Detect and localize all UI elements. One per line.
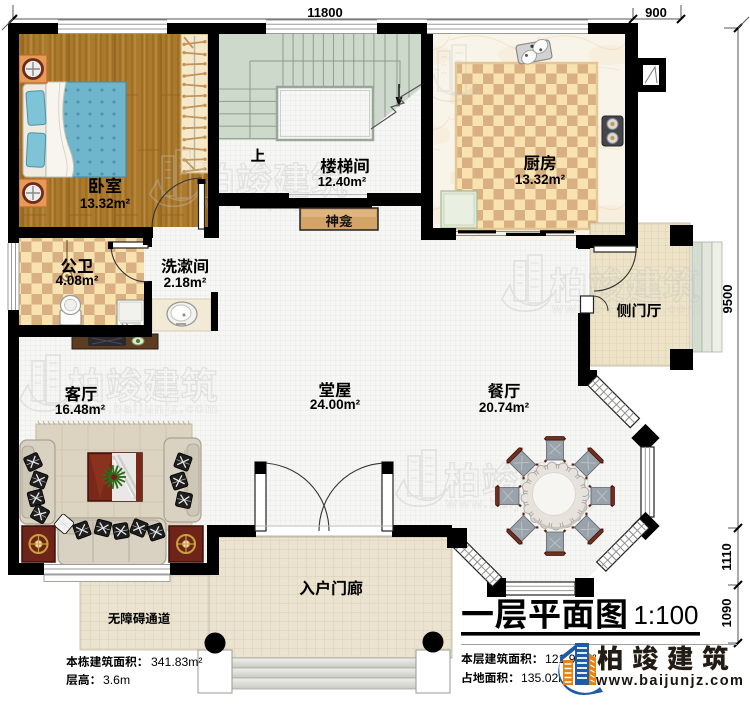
svg-text:4.08m²: 4.08m² [56,273,99,288]
svg-text:900: 900 [645,5,667,20]
svg-text:1110: 1110 [719,543,734,571]
svg-text:www.baijunjz.com: www.baijunjz.com [551,300,702,316]
svg-text:20.74m²: 20.74m² [479,400,530,415]
svg-text:13.32m²: 13.32m² [515,172,566,187]
svg-text:341.83m²: 341.83m² [151,655,203,669]
svg-text:www.baijunjz.com: www.baijunjz.com [595,673,744,689]
svg-text:1:100: 1:100 [633,600,698,630]
svg-text:11800: 11800 [307,5,342,20]
svg-text:2.18m²: 2.18m² [164,275,207,290]
svg-text:16.48m²: 16.48m² [55,402,106,417]
svg-text:13.32m²: 13.32m² [80,196,131,211]
svg-text:1090: 1090 [719,599,734,628]
svg-text:24.00m²: 24.00m² [310,397,361,412]
svg-text:3.6m: 3.6m [103,673,130,687]
svg-text:9500: 9500 [720,285,735,314]
svg-text:12.40m²: 12.40m² [318,174,367,189]
